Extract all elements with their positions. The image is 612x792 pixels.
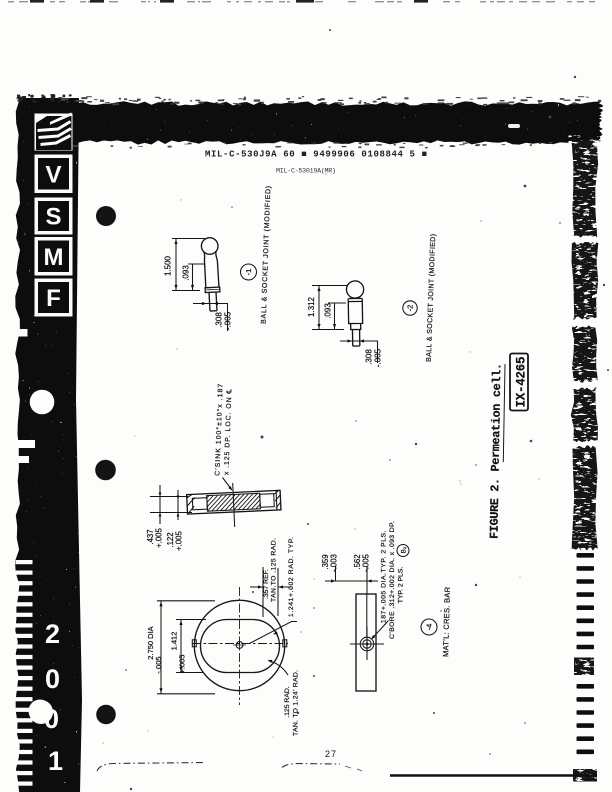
svg-text:.093: .093 xyxy=(324,303,333,319)
svg-text:+.005: +.005 xyxy=(155,527,164,547)
svg-text:-.003: -.003 xyxy=(330,554,339,572)
svg-text:.125 RAD.: .125 RAD. xyxy=(284,686,291,717)
svg-text:C’BORE .312+.002 DIA. x .093 D: C’BORE .312+.002 DIA. x .093 DP. xyxy=(389,521,396,639)
svg-text:-2: -2 xyxy=(406,305,415,312)
svg-text:-.005: -.005 xyxy=(224,311,233,330)
svg-text:2: 2 xyxy=(45,619,60,649)
svg-text:2.750 DIA: 2.750 DIA xyxy=(146,626,155,659)
svg-text:1.500: 1.500 xyxy=(164,255,173,276)
svg-text:IX-4265: IX-4265 xyxy=(515,357,529,408)
svg-text:1.412: 1.412 xyxy=(170,632,179,651)
svg-text:-1: -1 xyxy=(244,269,253,276)
svg-text:+.005: +.005 xyxy=(175,530,184,550)
svg-text:S: S xyxy=(45,204,61,231)
svg-text:0: 0 xyxy=(45,664,60,694)
svg-text:.187+.005 DIA.TYP. 2 PLS.: .187+.005 DIA.TYP. 2 PLS. xyxy=(381,530,388,625)
svg-text:TYP. 2 PLS.: TYP. 2 PLS. xyxy=(398,567,405,604)
svg-text:-.005: -.005 xyxy=(374,348,383,367)
svg-text:27: 27 xyxy=(325,749,337,759)
svg-text:+.005: +.005 xyxy=(178,655,187,674)
svg-text:TAN. TO 1.24’ RAD.: TAN. TO 1.24’ RAD. xyxy=(293,670,300,736)
svg-text:-.005: -.005 xyxy=(154,656,163,673)
svg-text:-4: -4 xyxy=(425,624,434,631)
svg-text:F: F xyxy=(46,285,61,312)
svg-text:TAN.TO .125 RAD.: TAN.TO .125 RAD. xyxy=(271,538,278,602)
svg-text:1: 1 xyxy=(48,746,63,776)
svg-text:V: V xyxy=(45,161,61,188)
svg-text:-.005: -.005 xyxy=(362,553,371,571)
svg-text:1.312: 1.312 xyxy=(307,296,316,317)
svg-text:.308: .308 xyxy=(365,349,374,365)
svg-text:.357 REF.: .357 REF. xyxy=(263,569,270,599)
svg-text:MIL-C-530J9A 60 ■ 9499906 0108: MIL-C-530J9A 60 ■ 9499906 0108844 5 ■ xyxy=(205,150,427,160)
svg-text:.093: .093 xyxy=(182,265,191,281)
svg-text:MIL-C-53019A(MR): MIL-C-53019A(MR) xyxy=(276,168,336,175)
svg-text:B₂: B₂ xyxy=(401,546,408,553)
svg-text:MAT’L: CRES. BAR: MAT’L: CRES. BAR xyxy=(441,586,452,657)
svg-text:1.241+.002 RAD. TYP.: 1.241+.002 RAD. TYP. xyxy=(288,537,295,617)
svg-text:.308: .308 xyxy=(215,312,224,328)
svg-text:M: M xyxy=(44,244,64,271)
